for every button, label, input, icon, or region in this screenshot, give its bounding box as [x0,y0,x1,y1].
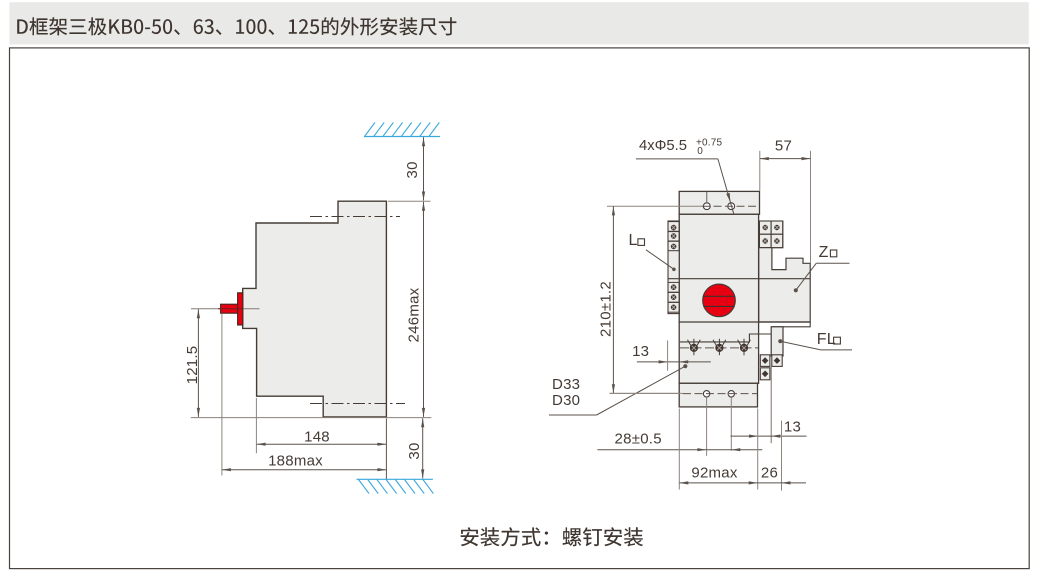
svg-text:246max: 246max [405,287,422,342]
svg-text:4xΦ5.5: 4xΦ5.5 [639,138,687,154]
svg-text:30: 30 [404,161,421,178]
svg-text:188max: 188max [268,453,323,470]
svg-text:D30: D30 [552,392,580,409]
svg-text:13: 13 [632,343,649,360]
svg-text:28±0.5: 28±0.5 [615,431,662,448]
svg-text:121.5: 121.5 [184,346,201,385]
svg-text:FL: FL [817,331,836,348]
svg-text:210±1.2: 210±1.2 [598,281,615,337]
svg-text:92max: 92max [691,465,738,482]
svg-text:26: 26 [761,465,778,482]
svg-text:L: L [629,232,638,249]
svg-text:57: 57 [775,138,792,155]
svg-text:148: 148 [304,428,330,445]
svg-text:0: 0 [697,146,703,157]
svg-text:D33: D33 [552,376,580,393]
svg-text:30: 30 [406,442,423,459]
svg-text:Z: Z [819,244,829,261]
svg-text:13: 13 [784,419,801,436]
